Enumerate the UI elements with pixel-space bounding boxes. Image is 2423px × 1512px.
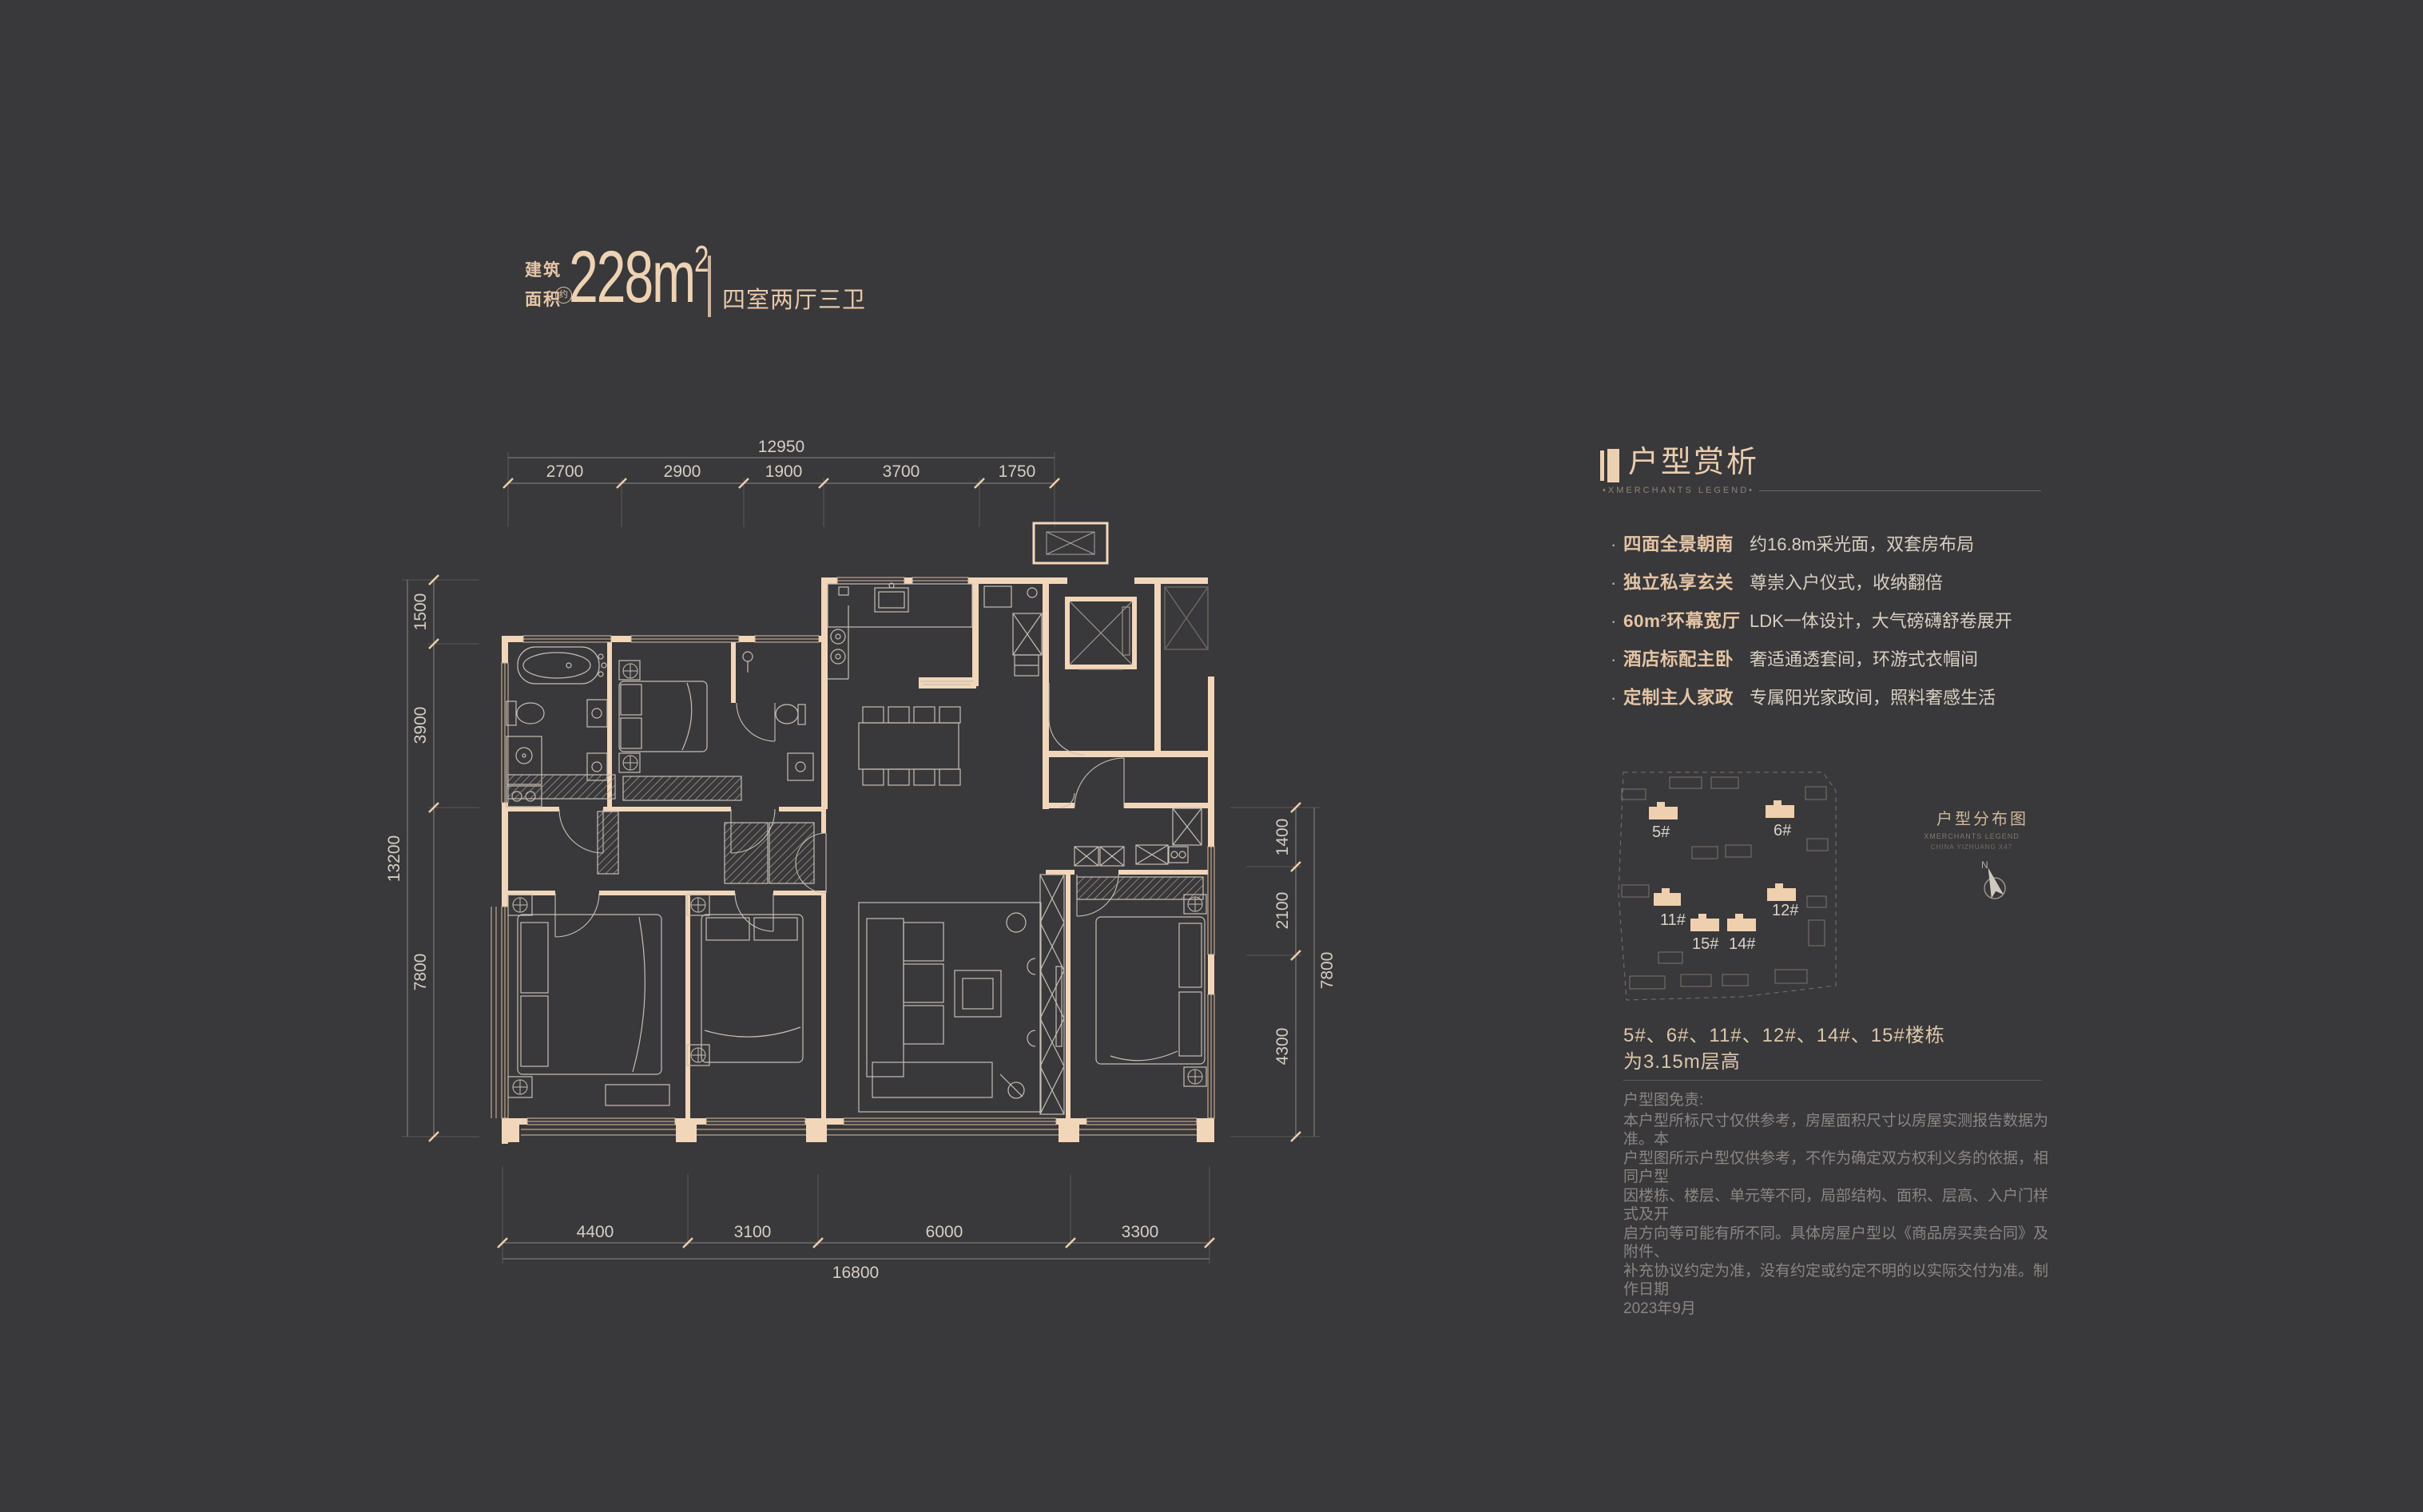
site-building-label: 15# [1692,935,1719,953]
site-building-label: 6# [1774,822,1792,839]
dim-top-seg: 2900 [664,462,701,481]
floorplan-graphic: 12950 2700 2900 1900 3700 1750 4400 3100… [0,0,2423,1512]
neighbor-shaft [1165,587,1208,649]
dim-bottom-seg: 6000 [926,1223,963,1241]
item-desc: LDK一体设计，大气磅礴舒卷展开 [1750,611,2012,632]
analysis-heading: 户型赏析 [1628,437,1759,481]
site-plan-subtitle1: XMERCHANTS LEGEND [1924,832,2020,840]
subheading-rule [1759,490,2041,491]
item-desc: 专属阳光家政间，照料奢感生活 [1750,688,1996,708]
site-building-label: 14# [1729,935,1756,953]
item-label: 独立私享玄关 [1623,573,1743,593]
site-plan-subtitle2: CHINA YIZHUANG X47 [1931,843,2012,851]
area-number: 228m [569,236,694,318]
item-desc: 奢适通透套间，环游式衣帽间 [1750,649,1978,670]
dim-top-seg: 2700 [546,462,584,481]
dim-right-total: 7800 [1318,952,1337,990]
dim-left-total: 13200 [385,835,403,882]
item-bullet: · [1611,688,1623,708]
analysis-subheading-row: •XMERCHANTS LEGEND• [1603,486,2041,495]
analysis-item: · 四面全景朝南 约16.8m采光面，双套房布局 [1611,534,2058,555]
item-bullet: · [1611,611,1623,632]
elevator-core [1034,523,1208,669]
dim-right-seg: 4300 [1273,1028,1292,1066]
item-label: 60m²环幕宽厅 [1623,611,1743,632]
dim-left-seg: 7800 [411,954,430,991]
disclaimer-line: 启方向等可能有所不同。具体房屋户型以《商品房买卖合同》及附件、 [1623,1224,2055,1262]
compass-north-label: N [1981,859,1988,871]
item-label: 四面全景朝南 [1623,534,1743,555]
note-line2: 为3.15m层高 [1623,1049,1945,1075]
analysis-item-list: · 四面全景朝南 约16.8m采光面，双套房布局 · 独立私享玄关 尊崇入户仪式… [1611,534,2058,726]
area-value: 228m2 [569,236,709,319]
analysis-subheading: •XMERCHANTS LEGEND• [1603,486,1754,495]
heading-bar-icon [1600,450,1604,481]
analysis-item: · 60m²环幕宽厅 LDK一体设计，大气磅礴舒卷展开 [1611,611,2058,632]
disclaimer-line: 户型图所示户型仅供参考，不作为确定双方权利义务的依据，相同户型 [1623,1149,2055,1187]
layout-text: 四室两厅三卫 [722,281,866,315]
dim-top-seg: 1750 [999,462,1036,481]
dim-bottom-seg: 4400 [577,1223,614,1241]
dim-bottom-total: 16800 [832,1264,879,1282]
site-plan: 5# 6# 11# 12# 15# 14# 户型分布图 XMERCHANTS L… [1619,772,2028,1000]
entry-closets [1013,613,1202,866]
disclaimer-line: 因楼栋、楼层、单元等不同，局部结构、面积、层高、入户门样式及开 [1623,1187,2055,1224]
dim-left-seg: 3900 [411,707,430,744]
area-sup: 2 [694,238,709,280]
analysis-item: · 定制主人家政 专属阳光家政间，照料奢感生活 [1611,688,2058,708]
analysis-item: · 酒店标配主卧 奢适通透套间，环游式衣帽间 [1611,649,2058,670]
disclaimer-line: 补充协议约定为准，没有约定或约定不明的以实际交付为准。制作日期 [1623,1262,2055,1300]
analysis-item: · 独立私享玄关 尊崇入户仪式，收纳翻倍 [1611,573,2058,593]
item-desc: 约16.8m采光面，双套房布局 [1750,534,1974,555]
dim-top-seg: 3700 [883,462,920,481]
dim-left-seg: 1500 [411,593,430,631]
dim-top-seg: 1900 [765,462,803,481]
heading-bar-icon [1607,449,1619,482]
item-bullet: · [1611,573,1623,593]
site-building-label: 5# [1652,823,1670,841]
floorplan-brochure-page: 12950 2700 2900 1900 3700 1750 4400 3100… [0,0,2423,1512]
disclaimer: 户型图免责: 本户型所标尺寸仅供参考，房屋面积尺寸以房屋实测报告数据为准。本 户… [1623,1091,2055,1318]
media-wall [1040,875,1064,1114]
dim-right-seg: 1400 [1273,819,1292,856]
title-area-label: 建筑 面积 [525,256,562,315]
disclaimer-line: 本户型所标尺寸仅供参考，房屋面积尺寸以房屋实测报告数据为准。本 [1623,1112,2055,1149]
site-plan-title: 户型分布图 [1936,810,2028,828]
title-area-label-line1: 建筑 [525,256,562,285]
dim-right-seg: 2100 [1273,892,1292,930]
compass-icon: N [1981,859,2005,899]
title-divider [708,256,711,317]
site-building-label: 12# [1772,902,1799,919]
item-bullet: · [1611,534,1623,555]
note-separator [1623,1080,2042,1081]
dim-bottom-seg: 3100 [734,1223,772,1241]
disclaimer-title: 户型图免责: [1623,1091,2055,1110]
item-label: 定制主人家政 [1623,688,1743,708]
dim-top-total: 12950 [758,438,804,456]
dimension-labels: 12950 2700 2900 1900 3700 1750 4400 3100… [385,438,1337,1282]
disclaimer-line: 2023年9月 [1623,1300,2055,1319]
note-line1: 5#、6#、11#、12#、14#、15#楼栋 [1623,1022,1945,1049]
item-bullet: · [1611,649,1623,670]
item-desc: 尊崇入户仪式，收纳翻倍 [1750,573,1943,593]
site-building-label: 11# [1660,911,1686,929]
dim-bottom-seg: 3300 [1122,1223,1159,1241]
item-label: 酒店标配主卧 [1623,649,1743,670]
building-height-note: 5#、6#、11#、12#、14#、15#楼栋 为3.15m层高 [1623,1022,1945,1075]
